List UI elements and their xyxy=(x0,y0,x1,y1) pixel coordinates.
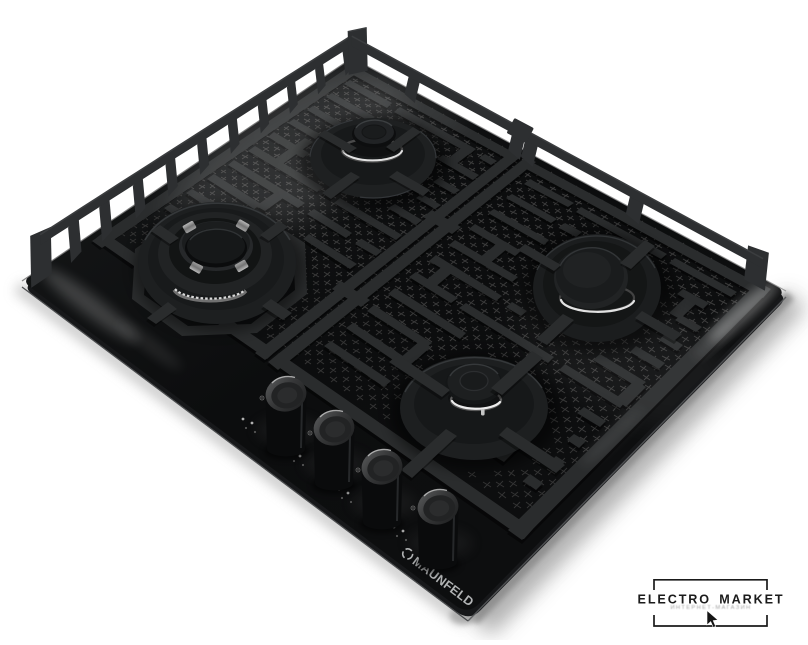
svg-text:ИНТЕРНЕТ-МАГАЗИН: ИНТЕРНЕТ-МАГАЗИН xyxy=(670,605,751,611)
